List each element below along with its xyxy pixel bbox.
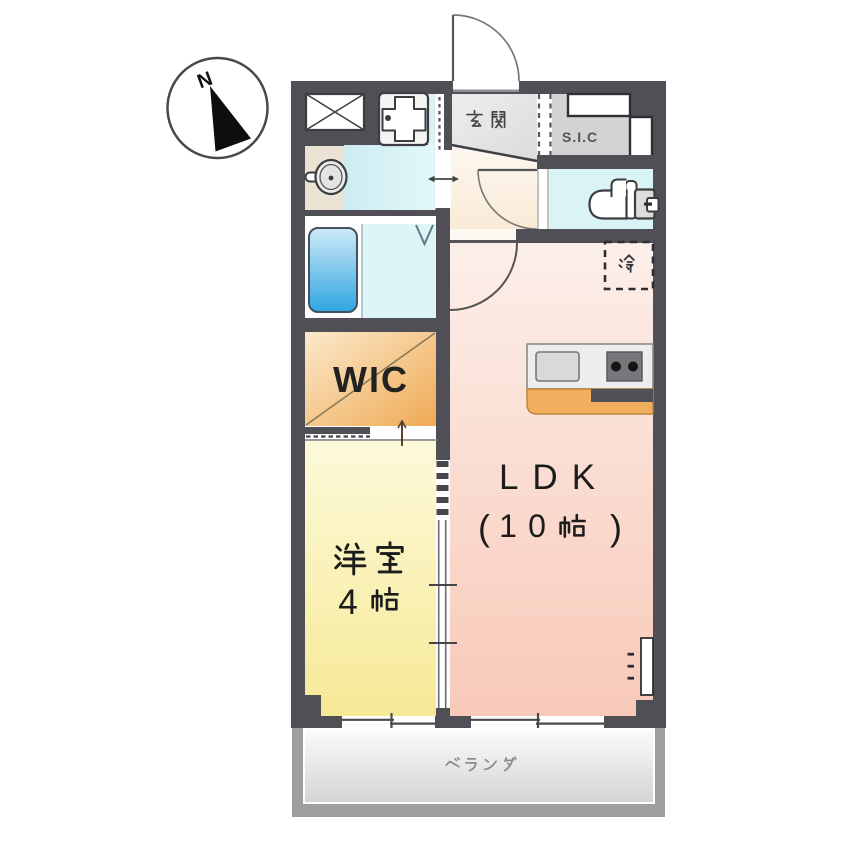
svg-text:WIC: WIC [333, 359, 409, 400]
svg-text:LDK: LDK [499, 458, 609, 497]
svg-text:): ) [610, 507, 622, 548]
svg-text:1: 1 [499, 508, 517, 544]
svg-text:0: 0 [528, 508, 546, 544]
svg-text:S.I.C: S.I.C [562, 129, 598, 145]
svg-text:(: ( [478, 507, 490, 548]
svg-text:4: 4 [338, 583, 357, 622]
